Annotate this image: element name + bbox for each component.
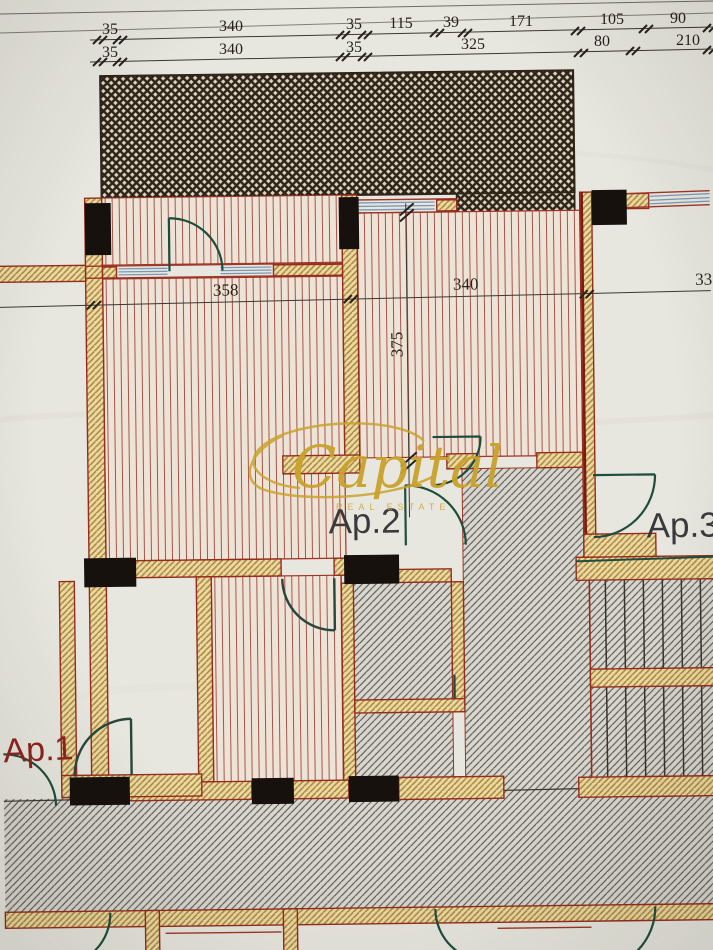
floorplan-photo: 35 340 35 115 39 171 105 90 35 340 35 32… bbox=[0, 0, 713, 950]
photo-vignette bbox=[0, 0, 713, 950]
floorplan-drawing: 35 340 35 115 39 171 105 90 35 340 35 32… bbox=[0, 0, 713, 950]
